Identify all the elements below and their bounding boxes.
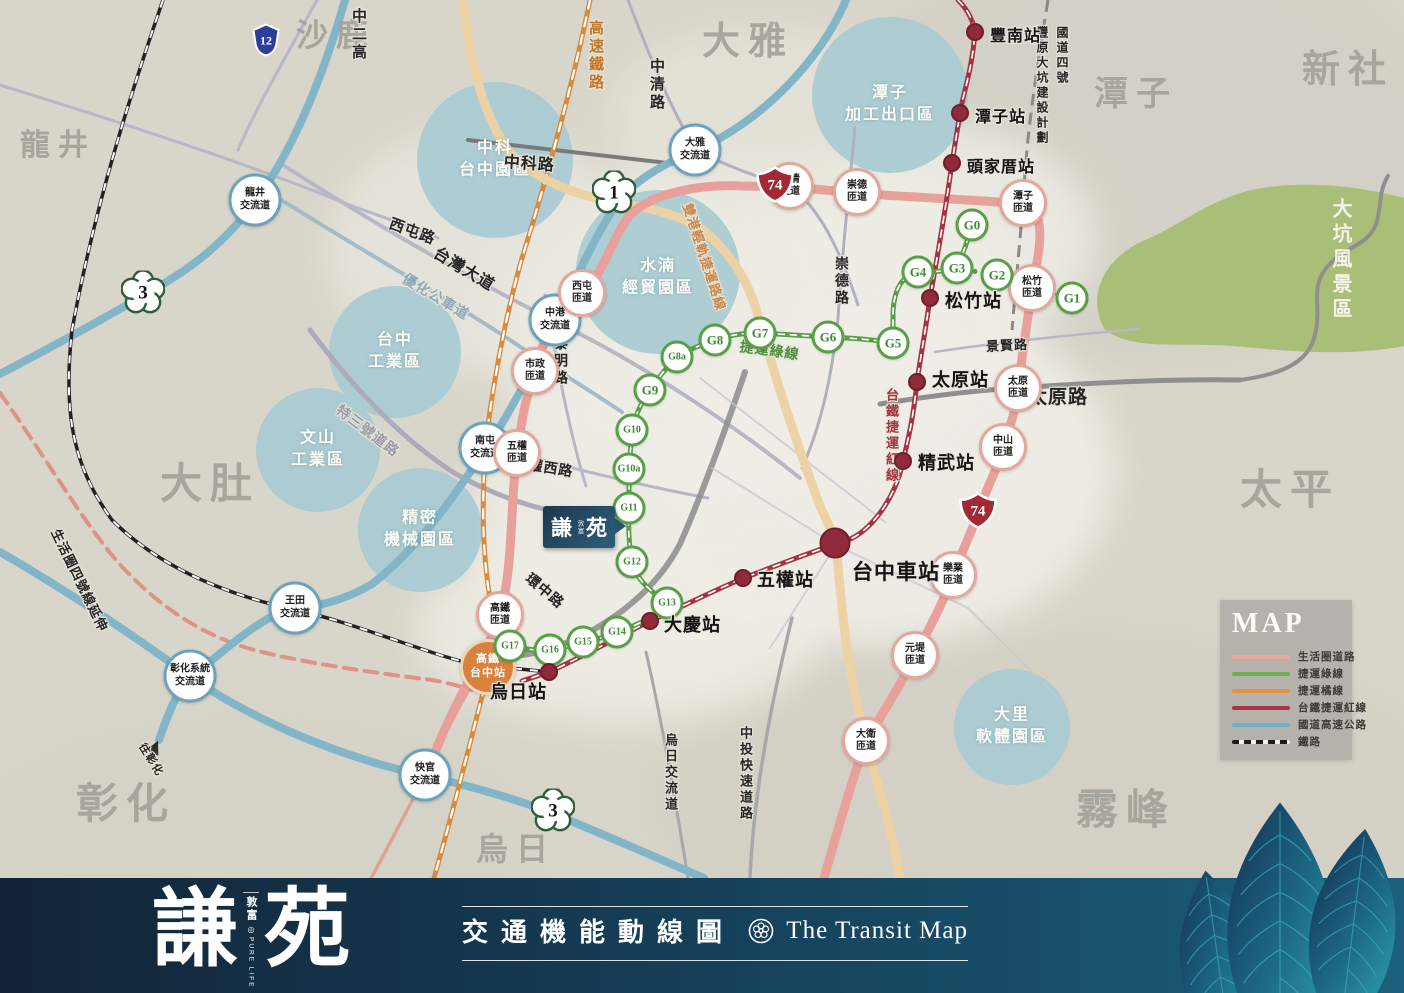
banner-rule-bottom (462, 960, 968, 961)
green-station-marker: G1 (1056, 282, 1089, 315)
legend-label: 台鐵捷運紅線 (1298, 700, 1367, 715)
region-label: 大肚 (160, 450, 260, 511)
park-label: 文山工業區 (291, 428, 345, 473)
banner-title-block: 交通機能動線圖 The Transit Map (462, 886, 968, 978)
park-label-line: 水湳 (640, 258, 676, 275)
red-station-dot (951, 104, 969, 122)
road-label: 景賢路 (986, 334, 1029, 355)
park-label: 台中工業區 (368, 330, 422, 375)
interchange-name: 南屯 (475, 436, 495, 449)
red-station-dot (734, 569, 752, 587)
region-label: 彰化 (76, 770, 176, 831)
legend-title: MAP (1232, 608, 1352, 640)
green-station-marker: G0 (956, 209, 989, 242)
ramp-marker: 西屯匝道 (558, 269, 606, 317)
ramp-marker: 元堤匝道 (891, 631, 939, 679)
map-legend: MAP 生活圈道路捷運綠線捷運橘線台鐵捷運紅線國道高速公路鐵路 (1220, 600, 1352, 760)
project-flag-pointer (615, 518, 626, 534)
park-label-line: 經貿園區 (622, 280, 694, 297)
shield-number: 74 (754, 165, 796, 214)
project-flag: 謙 敦富 苑 (543, 506, 615, 548)
green-station-marker: G7 (744, 317, 777, 350)
rosette-icon (748, 918, 774, 944)
road-label: 崇德路 (830, 256, 850, 307)
interchange-marker: 彰化系統交流道 (164, 650, 217, 703)
green-station-marker: G4 (902, 256, 935, 289)
ramp-name: 匝道 (507, 453, 527, 466)
ramp-name: 匝道 (1013, 203, 1033, 216)
ramp-name: 元堤 (905, 643, 925, 656)
red-station-label: 精武站 (918, 449, 975, 475)
ramp-name: 高鐵 (490, 603, 510, 616)
banner-title-en: The Transit Map (786, 917, 968, 945)
park-label-line: 機械園區 (384, 532, 456, 549)
park-label-line: 加工出口區 (845, 107, 935, 124)
red-station-label: 太原站 (932, 366, 989, 392)
shield-number: 74 (957, 491, 999, 540)
ramp-marker: 太原匝道 (994, 364, 1042, 412)
national-route-shield: 3 (121, 271, 165, 320)
road-label: 中二高 (348, 8, 369, 62)
road-label: 西屯路 (386, 213, 438, 249)
ramp-name: 西屯 (572, 281, 592, 294)
park-label-line: 文山 (300, 430, 336, 447)
interchange-marker: 大雅交流道 (669, 124, 722, 177)
road-label: 台鐵捷運紅線 (882, 388, 901, 484)
region-label: 太平 (1240, 456, 1340, 517)
green-station-marker: G16 (534, 634, 567, 667)
legend-swatch (1232, 672, 1290, 676)
park-label-line: 大里 (994, 707, 1030, 724)
interchange-name: 中港 (545, 308, 565, 321)
national-route-shield: 1 (592, 171, 636, 220)
green-station-marker: G5 (877, 327, 910, 360)
interchange-name: 龍井 (245, 188, 265, 201)
ramp-name: 匝道 (1008, 388, 1028, 401)
brand-logo: 謙 敦富 ◎ PURE LIFE 苑 (152, 886, 350, 989)
road-label: 烏日交流道 (661, 733, 680, 813)
brand-symbol-icon: ◎ (248, 925, 255, 934)
national-route-shield: 3 (531, 789, 575, 838)
brand-en: PURE LIFE (248, 937, 255, 989)
legend-row: 國道高速公路 (1232, 716, 1352, 733)
legend-swatch (1232, 689, 1290, 693)
red-station-label: 台中車站 (852, 556, 940, 586)
ramp-name: 崇德 (847, 180, 867, 193)
legend-label: 生活圈道路 (1298, 649, 1356, 664)
green-station-marker: G12 (616, 546, 649, 579)
interchange-name: 交流道 (240, 200, 270, 213)
red-station-dot (641, 612, 659, 630)
banner-title-zh: 交通機能動線圖 (462, 912, 735, 949)
road-label: 環中路 (522, 568, 569, 612)
interchange-name: 交流道 (410, 775, 440, 788)
interchange-name: 快官 (415, 763, 435, 776)
legend-label: 捷運橘線 (1298, 683, 1344, 698)
red-station-label: 潭子站 (975, 103, 1026, 127)
shield-number: 3 (531, 789, 575, 836)
flag-char-1: 謙 (551, 512, 572, 542)
ramp-name: 匝道 (856, 741, 876, 754)
banner-rule-top (462, 906, 968, 907)
region-label: 大雅 (702, 10, 794, 65)
interchange-name: 交流道 (175, 676, 205, 689)
ramp-name: 五權 (507, 441, 527, 454)
ramp-marker: 潭子匝道 (999, 179, 1047, 227)
legend-swatch (1232, 723, 1290, 727)
green-station-marker: G15 (567, 626, 600, 659)
red-station-label: 豐南站 (990, 22, 1041, 46)
ramp-name: 潭子 (1013, 191, 1033, 204)
ramp-name: 匝道 (525, 371, 545, 384)
green-station-marker: G14 (601, 616, 634, 649)
expressway-74-shield: 74 (957, 491, 999, 536)
green-station-marker: G8a (661, 341, 694, 374)
leaf-decoration (1140, 790, 1404, 993)
brand-middle-column: 敦富 ◎ PURE LIFE (243, 892, 259, 989)
legend-row: 台鐵捷運紅線 (1232, 699, 1352, 716)
brand-char-1: 謙 (152, 886, 238, 972)
road-label: 中科路 (503, 148, 556, 176)
park-label-line: 軟體園區 (976, 729, 1048, 746)
red-station-dot (894, 452, 912, 470)
road-label: 大坑風景區 (1326, 198, 1355, 323)
interchange-marker: 龍井交流道 (229, 174, 282, 227)
park-label: 水湳經貿園區 (622, 256, 694, 301)
legend-label: 鐵路 (1298, 734, 1321, 749)
ramp-name: 樂業 (943, 563, 963, 576)
road-label: 中清路 (646, 58, 667, 112)
expressway-74-shield: 74 (754, 165, 796, 210)
flag-sub: 敦富 (574, 520, 584, 535)
park-label: 潭子加工出口區 (845, 83, 935, 128)
interchange-marker: 快官交流道 (399, 749, 452, 802)
brand-sub: 敦富 (243, 896, 259, 922)
ramp-name: 松竹 (1022, 276, 1042, 289)
road-label: 國道四號 (1054, 26, 1071, 86)
region-label: 龍井 (20, 120, 96, 164)
shield-number: 3 (121, 271, 165, 318)
red-station-label: 大慶站 (664, 611, 721, 637)
green-station-marker: G9 (634, 374, 667, 407)
ramp-name: 匝道 (572, 293, 592, 306)
park-label-line: 工業區 (291, 452, 345, 469)
park-label-line: 工業區 (368, 354, 422, 371)
legend-label: 捷運綠線 (1298, 666, 1344, 681)
ramp-name: 中山 (993, 435, 1013, 448)
park-label-line: 潭子 (872, 85, 908, 102)
ramp-marker: 崇德匝道 (833, 168, 881, 216)
green-station-marker: G10 (616, 414, 649, 447)
region-label: 潭子 (1094, 66, 1178, 115)
red-station-label: 頭家厝站 (967, 153, 1035, 177)
ramp-marker: 市政匝道 (511, 347, 559, 395)
shield-number: 1 (592, 171, 636, 218)
legend-row: 鐵路 (1232, 733, 1352, 750)
ramp-name: 匝道 (847, 192, 867, 205)
red-station-dot (820, 528, 851, 559)
road-label: 生活圈四號線延伸 (47, 525, 113, 634)
legend-row: 生活圈道路 (1232, 648, 1352, 665)
ramp-name: 匝道 (993, 447, 1013, 460)
legend-swatch (1232, 706, 1290, 710)
interchange-name: 交流道 (540, 320, 570, 333)
brand-char-2: 苑 (264, 886, 350, 972)
legend-swatch (1232, 740, 1290, 744)
ramp-marker: 松竹匝道 (1008, 264, 1056, 312)
ramp-name: 匝道 (905, 655, 925, 668)
green-station-marker: G6 (812, 321, 845, 354)
red-station-label: 松竹站 (945, 287, 1002, 313)
interchange-marker: 王田交流道 (269, 582, 322, 635)
transit-map-poster: 沙鹿龍井大雅新社潭子大肚太平彰化霧峰烏日中科台中園區水湳經貿園區潭子加工出口區台… (0, 0, 1404, 993)
park-label-line: 精密 (402, 510, 438, 527)
region-label: 新社 (1302, 38, 1394, 93)
ramp-marker: 五權匝道 (493, 429, 541, 477)
banner-title-row: 交通機能動線圖 The Transit Map (462, 912, 968, 949)
green-station-marker: G17 (494, 630, 527, 663)
park-label: 大里軟體園區 (976, 705, 1048, 750)
ramp-name: 匝道 (490, 615, 510, 628)
ramp-name: 大衛 (856, 729, 876, 742)
red-station-dot (943, 154, 961, 172)
ramp-marker: 大衛匝道 (842, 717, 890, 765)
red-station-label: 五權站 (757, 566, 814, 592)
red-station-dot (921, 289, 939, 307)
red-station-dot (908, 373, 926, 391)
interchange-name: 大雅 (685, 138, 705, 151)
interchange-name: 交流道 (280, 608, 310, 621)
flag-char-2: 苑 (586, 512, 607, 542)
ramp-marker: 中山匝道 (979, 423, 1027, 471)
shield-number: 12 (251, 23, 281, 64)
road-label: 高速鐵路 (585, 20, 606, 92)
legend-row: 捷運橘線 (1232, 682, 1352, 699)
ramp-name: 匝道 (1022, 288, 1042, 301)
park-label: 精密機械園區 (384, 508, 456, 553)
park-label-line: 台中 (377, 332, 413, 349)
interchange-name: 交流道 (680, 150, 710, 163)
green-station-marker: G3 (941, 252, 974, 285)
ramp-name: 匝道 (943, 575, 963, 588)
road-label: 中投快速道路 (736, 726, 755, 822)
red-station-dot (966, 23, 984, 41)
green-station-marker: G8 (699, 324, 732, 357)
legend-rows: 生活圈道路捷運綠線捷運橘線台鐵捷運紅線國道高速公路鐵路 (1232, 648, 1352, 750)
interchange-name: 王田 (285, 596, 305, 609)
legend-label: 國道高速公路 (1298, 717, 1367, 732)
interchange-name: 彰化系統 (170, 664, 210, 677)
ramp-name: 市政 (525, 359, 545, 372)
legend-row: 捷運綠線 (1232, 665, 1352, 682)
red-station-label: 烏日站 (490, 678, 547, 704)
green-station-marker: G10a (613, 453, 646, 486)
legend-swatch (1232, 655, 1290, 659)
ramp-name: 太原 (1008, 376, 1028, 389)
provincial-route-shield: 12 (251, 23, 281, 62)
